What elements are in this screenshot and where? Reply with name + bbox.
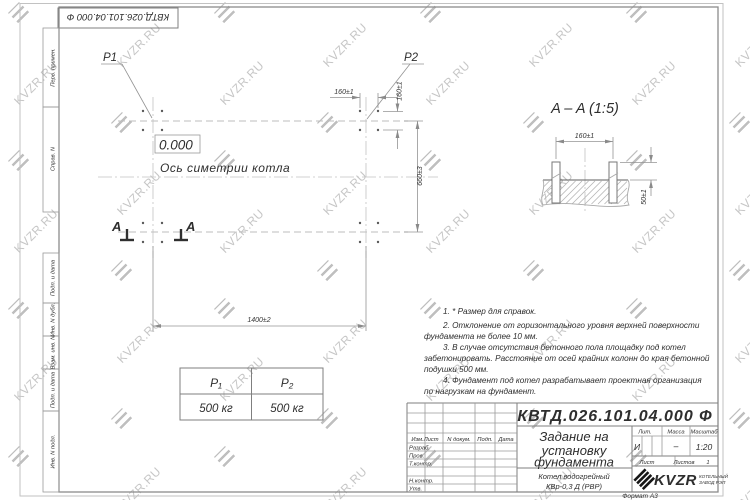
company-tagline-1: КОТЕЛЬНЫЙ: [699, 472, 729, 479]
date-col-header: Дата: [497, 437, 514, 443]
corner-stamp-code: КВТД.026.101.04.000 Ф: [66, 11, 169, 22]
notes-block: 1. * Размер для справок. 2. Отклонение о…: [423, 307, 710, 396]
axis-of-symmetry-label: Ось симетрии котла: [160, 161, 290, 175]
margin-field-sprav-n: Справ. N: [51, 146, 57, 171]
company-tagline-2: ЗАВОД РЭП: [699, 480, 726, 485]
role-utv: Утв.: [408, 487, 422, 493]
lit-value: И: [634, 442, 641, 452]
note-line-8: по нагрузкам на фундамент.: [424, 387, 536, 396]
scale-value: 1:20: [696, 442, 713, 452]
margin-fields: Перв. примен. Справ. N Подп. и дата Инв.…: [43, 28, 59, 492]
kvzr-logo-icon: [633, 468, 655, 490]
sheets-label: Листов: [672, 460, 694, 466]
section-letter-right: A: [185, 219, 195, 234]
load-table: P₁ P₂ 500 кг 500 кг: [180, 368, 323, 420]
mass-value: –: [673, 441, 679, 451]
dim-1400-label: 1400±2: [247, 317, 270, 324]
elevation-label: 0.000: [159, 138, 193, 153]
dim-bolt-spacing-vertical: 160±1: [383, 81, 404, 149]
dim-160-v-label: 160±1: [397, 81, 404, 101]
role-nkontr: Н.контр.: [409, 479, 434, 485]
load-table-value-p2: 500 кг: [270, 403, 304, 415]
dim-width-660: 660±3: [404, 121, 424, 232]
sheets-value: 1: [706, 460, 709, 466]
load-table-header-p1: P₁: [210, 376, 222, 390]
dim-section-160-label: 160±1: [575, 133, 595, 140]
dim-160-h-label: 160±1: [334, 89, 354, 96]
note-line-6: подушки 500 мм.: [424, 365, 489, 374]
margin-field-inv-dubl: Инв. N дубл.: [51, 303, 57, 337]
role-razrab: Разраб.: [409, 446, 430, 452]
rev-header: Изм.Лист: [411, 437, 438, 443]
load-table-value-p1: 500 кг: [199, 403, 233, 415]
company-logo-text: KVZR: [654, 472, 697, 489]
plan-view: P1 P2 160±1: [98, 52, 438, 331]
margin-field-podp-data-2: Подп. и дата: [51, 371, 57, 408]
note-line-1: 1. * Размер для справок.: [443, 307, 536, 316]
dim-section-spacing: 160±1: [556, 133, 613, 159]
section-view-title: A – A (1:5): [550, 101, 619, 117]
drawing-title-line-3: фундамента: [534, 455, 614, 470]
product-name-line-1: Котел водогрейный: [538, 472, 610, 481]
title-block: КВТД.026.101.04.000 Ф Изм.Лист N докум. …: [407, 403, 729, 500]
doc-col-header: N докум.: [447, 437, 470, 443]
corner-stamp: КВТД.026.101.04.000 Ф: [58, 8, 178, 28]
margin-field-inv-podl: Инв. N подл.: [51, 435, 57, 469]
dim-660-label: 660±3: [417, 166, 424, 186]
note-line-2: 2. Отклонение от горизонтального уровня …: [442, 321, 700, 330]
note-line-5: забетонировать. Расстояние от осей крайн…: [423, 354, 710, 363]
dim-length-1400: 1400±2: [153, 246, 366, 331]
sheet-label: Лист: [639, 460, 655, 466]
anchor-bolt-points: [142, 110, 379, 243]
margin-field-podp-data-1: Подп. и дата: [51, 259, 57, 296]
note-line-4: 3. В случае отсутствия бетонного пола пл…: [443, 343, 686, 352]
mass-label: Масса: [667, 430, 685, 436]
lit-label: Лит.: [637, 430, 652, 436]
section-letter-left: A: [111, 219, 121, 234]
section-view: A – A (1:5) 160±1: [542, 101, 657, 212]
role-prov: Пров.: [409, 454, 424, 460]
dim-section-50-label: 50±1: [641, 189, 648, 205]
drawing-sheet-page: KVZR.RUKVZR.RUKVZR.RUKVZR.RUKVZR.RUKVZR.…: [0, 0, 750, 500]
anchor-bolt-left: [551, 162, 561, 203]
load-table-header-p2: P₂: [281, 376, 294, 390]
load-point-p1: P1: [101, 52, 152, 118]
role-tkontr: Т.контр.: [409, 462, 432, 468]
engineering-drawing: КВТД.026.101.04.000 Ф Перв. примен. Спра…: [0, 0, 750, 500]
product-name-line-2: КВр-0,3 Д (РВР): [546, 482, 602, 491]
p1-label: P1: [103, 52, 117, 64]
format-label: Формат А3: [622, 493, 658, 500]
load-point-p2: P2: [367, 52, 424, 119]
doc-number: КВТД.026.101.04.000 Ф: [517, 408, 712, 425]
anchor-bolt-right: [608, 162, 618, 203]
note-line-7: 4. Фундамент под котел разрабатывает про…: [443, 376, 702, 385]
p2-label: P2: [404, 52, 419, 64]
dim-bolt-spacing-horizontal: 160±1: [330, 89, 397, 108]
sign-col-header: Подп.: [477, 437, 492, 443]
margin-field-vzam-inv: Взам. инв. N: [51, 335, 57, 370]
drawing-title-line-1: Задание на: [539, 429, 608, 444]
margin-field-perv-primen: Перв. примен.: [51, 48, 57, 87]
scale-label: Масштаб: [690, 430, 718, 436]
note-line-3: фундамента не более 10 мм.: [424, 332, 538, 341]
